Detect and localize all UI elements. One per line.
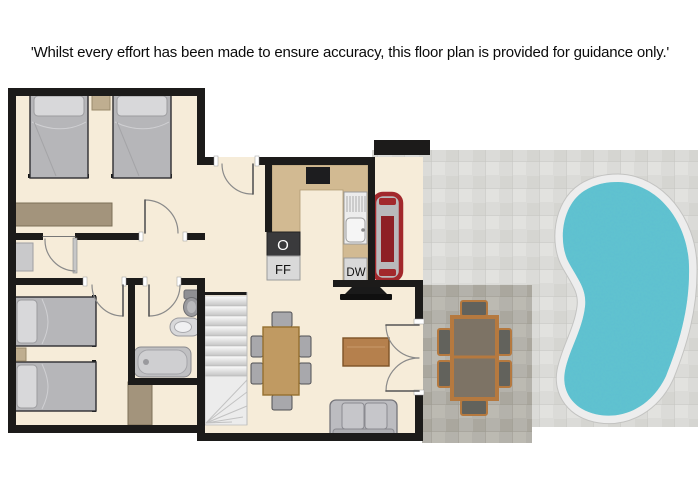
coffee-table <box>343 338 389 366</box>
bed <box>28 90 89 178</box>
bed <box>12 360 96 412</box>
fridge-freezer-label: FF <box>275 262 291 277</box>
outdoor-chair <box>438 361 451 387</box>
outdoor-chair <box>461 400 487 415</box>
bed <box>111 90 172 178</box>
dining-chair <box>299 336 311 357</box>
bathtub <box>134 347 191 377</box>
floor-plan-drawing: O FF DW <box>0 0 700 500</box>
staircase <box>203 292 247 425</box>
outdoor-chair <box>498 361 511 387</box>
hob <box>306 167 330 184</box>
dining-chair <box>251 363 263 384</box>
kitchen-sink <box>344 192 367 244</box>
dining-chair <box>272 312 292 327</box>
oven-label: O <box>277 237 289 254</box>
bedside-table <box>92 94 110 110</box>
dining-chair <box>299 363 311 384</box>
bbq-grill <box>374 194 401 280</box>
bathroom-sink <box>170 318 201 336</box>
outdoor-chair <box>438 329 451 355</box>
floor-plan-page: 'Whilst every effort has been made to en… <box>0 0 700 500</box>
dining-table <box>263 327 299 395</box>
swimming-pool <box>563 182 689 416</box>
outdoor-chair <box>461 301 487 316</box>
dining-chair <box>251 336 263 357</box>
wardrobe <box>128 382 152 425</box>
bed <box>12 295 96 347</box>
dining-chair <box>272 395 292 410</box>
outdoor-chair <box>498 329 511 355</box>
dresser <box>15 203 112 226</box>
dishwasher-label: DW <box>346 267 365 279</box>
